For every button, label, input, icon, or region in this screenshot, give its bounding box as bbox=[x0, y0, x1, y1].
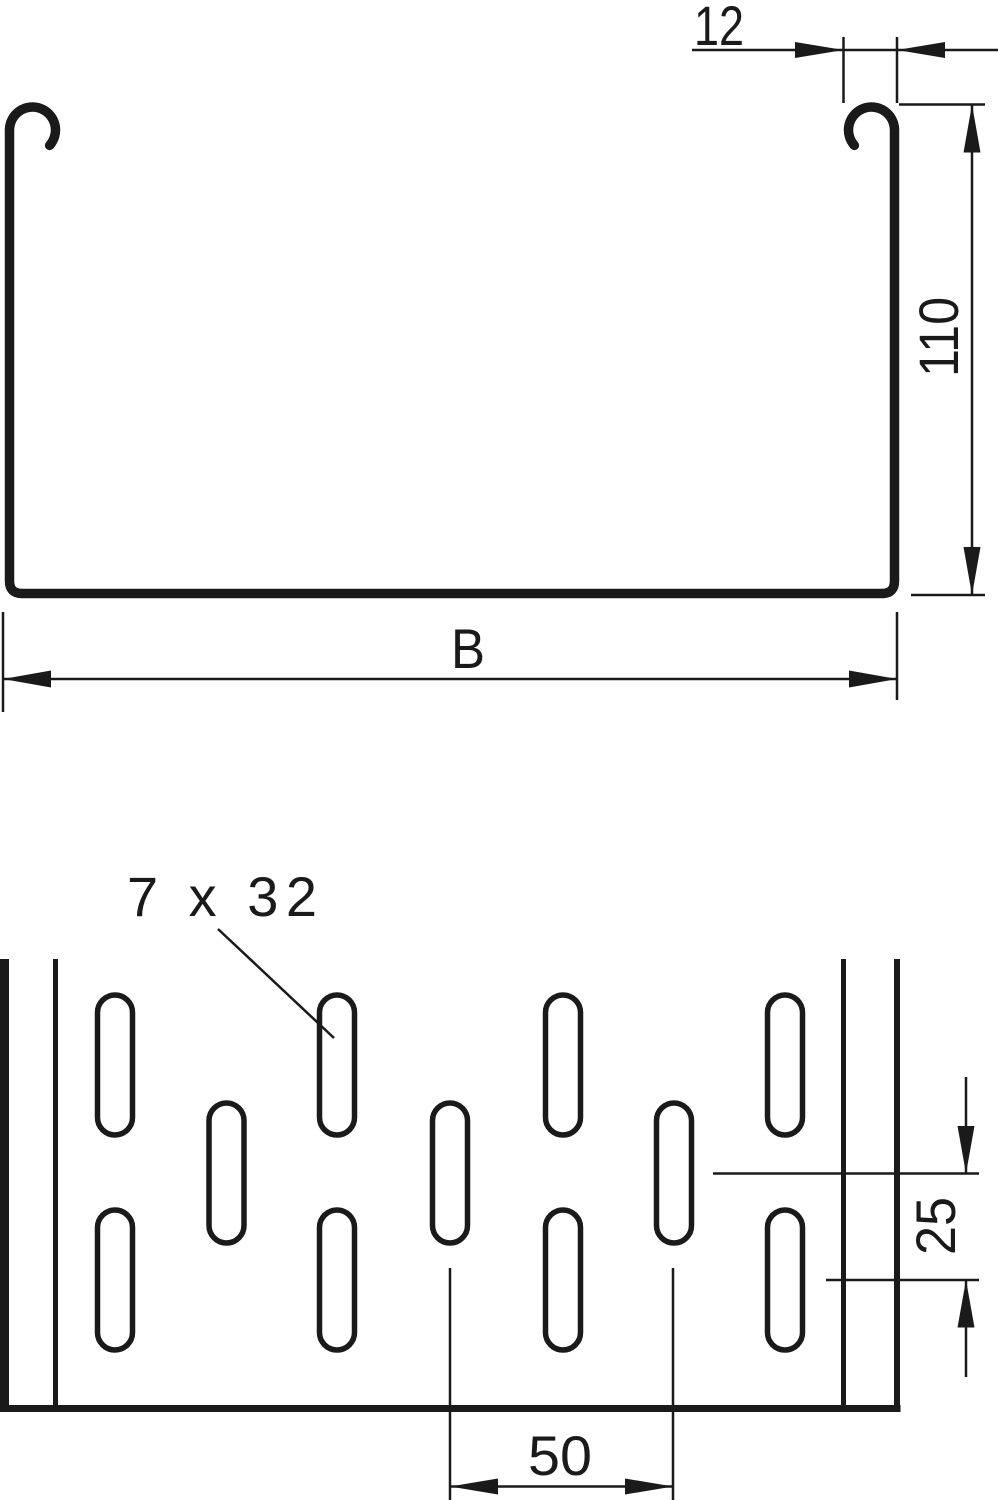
perforation-view: 7 x 32 25 50 bbox=[0, 865, 979, 1500]
arrowhead-up-icon bbox=[958, 1280, 975, 1328]
slot-row-middle bbox=[209, 1103, 692, 1243]
dimension-slot-pitch: 50 bbox=[450, 1268, 673, 1500]
slot bbox=[768, 995, 803, 1135]
row-offset-label: 25 bbox=[904, 1197, 967, 1255]
cross-section-view: 12 110 B bbox=[3, 0, 998, 712]
slot-size-label: 7 x 32 bbox=[127, 865, 317, 928]
slot bbox=[320, 1210, 355, 1350]
technical-drawing: 12 110 B bbox=[0, 0, 998, 1500]
width-b-label: B bbox=[451, 617, 485, 680]
dimension-flange-width: 12 bbox=[692, 0, 998, 103]
slot-size-callout: 7 x 32 bbox=[127, 865, 334, 1038]
dimension-height: 110 bbox=[899, 105, 985, 596]
slot bbox=[433, 1103, 468, 1243]
arrowhead-left-icon bbox=[3, 671, 51, 688]
arrowhead-right-icon bbox=[849, 671, 897, 688]
arrowhead-right-icon bbox=[795, 42, 844, 58]
slot bbox=[209, 1103, 244, 1243]
channel-profile-outline bbox=[10, 107, 895, 593]
slot-pitch-label: 50 bbox=[528, 1424, 592, 1487]
slot bbox=[98, 995, 133, 1135]
slot bbox=[657, 1103, 692, 1243]
slot-row-upper bbox=[98, 995, 803, 1135]
slot bbox=[768, 1210, 803, 1350]
slot bbox=[98, 1210, 133, 1350]
slot bbox=[546, 1210, 581, 1350]
arrowhead-down-icon bbox=[958, 1126, 975, 1174]
slot bbox=[320, 995, 355, 1135]
arrowhead-right-icon bbox=[625, 1479, 673, 1495]
height-label: 110 bbox=[907, 297, 970, 377]
arrowhead-up-icon bbox=[964, 105, 981, 153]
leader-line bbox=[218, 929, 334, 1038]
slot bbox=[546, 995, 581, 1135]
dimension-width-b: B bbox=[3, 612, 897, 712]
arrowhead-down-icon bbox=[964, 547, 981, 595]
flange-width-label: 12 bbox=[694, 0, 744, 57]
arrowhead-left-icon bbox=[897, 42, 945, 58]
arrowhead-left-icon bbox=[450, 1479, 498, 1495]
